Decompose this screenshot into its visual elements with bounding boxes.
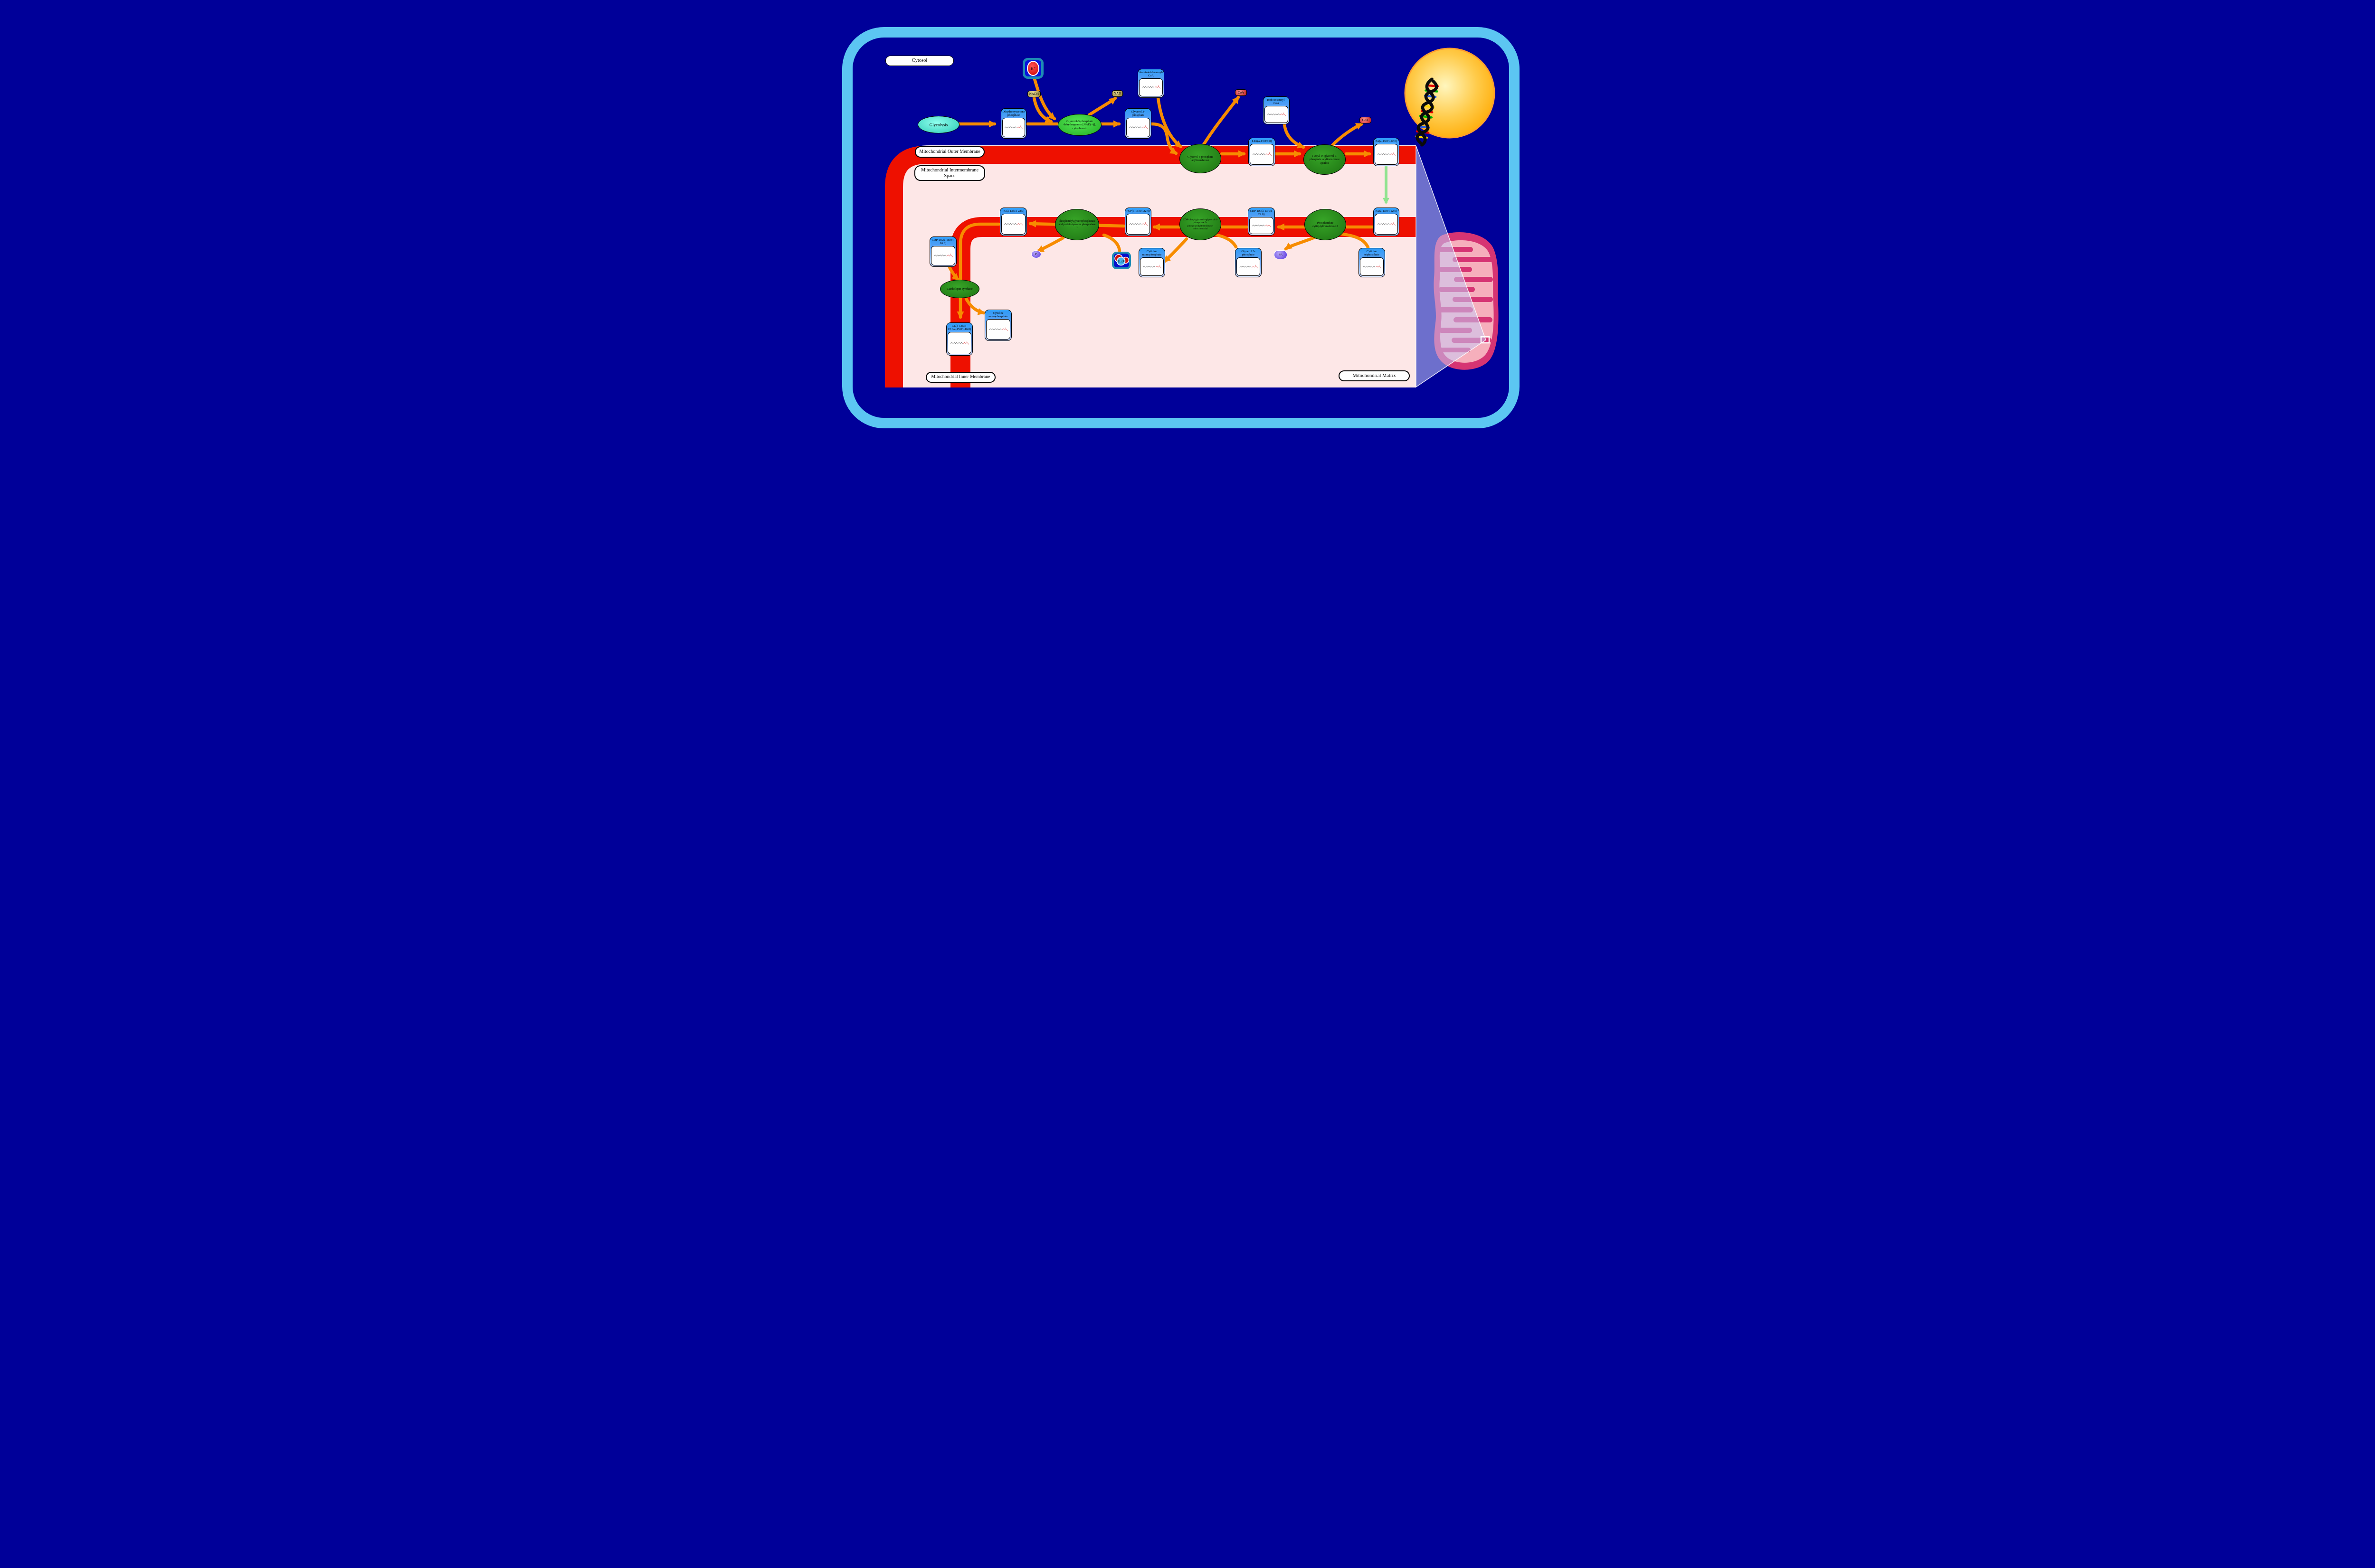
cofactor-nad[interactable]: NAD xyxy=(1112,90,1123,97)
molecule-structure xyxy=(1375,144,1398,165)
metabolite-title: LPA(a-13:0/0:0) xyxy=(1250,139,1274,144)
enzyme-gpat[interactable]: Glycerol-3-phosphate acyltransferase xyxy=(1179,144,1221,173)
metabolite-title: CDP-DG(a-15:0/i-16:0) xyxy=(931,238,955,246)
cofactor-nadh[interactable]: NADH xyxy=(1027,91,1041,97)
metabolite-title: CL(a-13:0/i-22:0/a-15:0/i-16:0) xyxy=(948,324,971,332)
enzyme-cds-mitochondrial[interactable]: CDP-diacylglycerol--glycerol-3-phosphate… xyxy=(1179,208,1221,240)
metabolite-cdp-dg-1[interactable]: CDP-DG(a-13:0/i-22:0) xyxy=(1248,208,1275,236)
metabolite-cl[interactable]: CL(a-13:0/i-22:0/a-15:0/i-16:0) xyxy=(946,322,973,356)
metabolite-pa-outer[interactable]: PA(a-13:0/i-22:0) xyxy=(1373,138,1399,166)
metabolite-pa-inner[interactable]: PA(a-13:0/i-22:0) xyxy=(1373,208,1399,236)
metabolite-ctp[interactable]: Cytidine triphosphate xyxy=(1358,248,1385,277)
enzyme-agpat-epsilon[interactable]: 1-Acyl-sn-glycerol-3-phosphate acyltrans… xyxy=(1303,144,1346,175)
enzyme-pct2[interactable]: Phosphatidate cytidylyltransferase 2 xyxy=(1304,209,1346,240)
compartment-label-inner-membrane: Mitochondrial Inner Membrane xyxy=(926,372,996,383)
molecule-structure xyxy=(1002,118,1025,137)
enzyme-gpd-cytoplasmic[interactable]: Glycerol-3-phosphate dehydrogenase [NAD(… xyxy=(1058,114,1102,136)
water-icon[interactable]: H₂O xyxy=(1112,252,1131,269)
metabolite-g3p-cytosol[interactable]: Glycerol 3-phosphate xyxy=(1125,108,1151,139)
enzyme-cardiolipin-synthase[interactable]: Cardiolipin synthase xyxy=(940,280,979,298)
node-glycolysis[interactable]: Glycolysis xyxy=(918,116,959,133)
molecule-structure xyxy=(1360,257,1384,276)
molecule-structure xyxy=(986,319,1010,340)
molecule-structure xyxy=(1236,257,1260,276)
molecule-structure xyxy=(1139,78,1163,96)
metabolite-cmp-1[interactable]: Cytidine monophosphate xyxy=(1139,248,1165,277)
metabolite-title: PA(a-13:0/i-22:0) xyxy=(1375,139,1398,144)
cofactor-coa-1[interactable]: CoA xyxy=(1235,89,1247,96)
metabolite-title: PG(a-13:0/i-22:0) xyxy=(1001,209,1026,214)
phosphate-pi[interactable]: Pᵢ xyxy=(1031,250,1041,258)
compartment-label-intermembrane-space: Mitochondrial Intermembrane Space xyxy=(914,165,985,181)
metabolite-pg[interactable]: PG(a-13:0/i-22:0) xyxy=(1000,208,1027,236)
metabolite-title: Cytidine triphosphate xyxy=(1360,249,1384,257)
metabolite-title: Anteisotridecanoyl-CoA xyxy=(1139,70,1163,78)
pathway-diagram: Cytosol Mitochondrial Outer Membrane Mit… xyxy=(815,0,1560,455)
compartment-label-outer-membrane: Mitochondrial Outer Membrane xyxy=(915,146,985,158)
metabolite-cmp-2[interactable]: Cytidine monophosphate xyxy=(985,310,1012,341)
metabolite-dhap[interactable]: Dihydroxyacetone phosphate xyxy=(1001,108,1026,139)
metabolite-g3p-matrix[interactable]: Glycerol 3-phosphate xyxy=(1235,248,1262,277)
molecule-structure xyxy=(1250,144,1274,165)
compartment-label-cytosol: Cytosol xyxy=(885,56,954,66)
molecule-structure xyxy=(1126,214,1150,235)
molecule-structure xyxy=(1249,217,1273,234)
metabolite-title: Glycerol 3-phosphate xyxy=(1126,110,1150,118)
pyrophosphate-ppi[interactable]: PPᵢ xyxy=(1274,250,1287,259)
metabolite-lpa[interactable]: LPA(a-13:0/0:0) xyxy=(1248,138,1275,166)
metabolite-title: PGP(a-13:0/i-22:0) xyxy=(1126,209,1150,214)
metabolite-isodocosanoyl-coa[interactable]: Isodocosanoyl-CoA xyxy=(1263,96,1290,124)
molecule-structure xyxy=(1140,257,1164,276)
metabolite-title: Glycerol 3-phosphate xyxy=(1236,249,1260,257)
water-molecule-art: H₂O xyxy=(1114,254,1129,267)
metabolite-title: Isodocosanoyl-CoA xyxy=(1264,98,1288,106)
metabolite-cdp-dg-2[interactable]: CDP-DG(a-15:0/i-16:0) xyxy=(930,236,957,267)
metabolite-title: Dihydroxyacetone phosphate xyxy=(1002,110,1025,118)
molecule-structure xyxy=(1126,118,1150,137)
hydrogen-ion-icon[interactable]: H⁺ xyxy=(1023,58,1044,79)
metabolite-title: Cytidine monophosphate xyxy=(1140,249,1164,257)
cofactor-coa-2[interactable]: CoA xyxy=(1359,117,1371,123)
metabolite-title: Cytidine monophosphate xyxy=(986,311,1010,319)
metabolite-pgp[interactable]: PGP(a-13:0/i-22:0) xyxy=(1125,208,1151,236)
metabolite-anteisotridecanoyl-coa[interactable]: Anteisotridecanoyl-CoA xyxy=(1138,69,1164,98)
metabolite-title: PA(a-13:0/i-22:0) xyxy=(1375,209,1398,214)
enzyme-pgpase[interactable]: Phosphatidylglycerophosphatase and prote… xyxy=(1055,209,1099,240)
molecule-structure xyxy=(931,246,955,265)
metabolite-title: CDP-DG(a-13:0/i-22:0) xyxy=(1249,209,1273,217)
compartment-label-matrix: Mitochondrial Matrix xyxy=(1339,370,1410,381)
molecule-structure xyxy=(1001,214,1026,235)
molecule-structure xyxy=(1375,214,1398,235)
molecule-structure xyxy=(948,332,971,354)
svg-text:H₂O: H₂O xyxy=(1118,260,1124,264)
molecule-structure xyxy=(1264,106,1288,123)
